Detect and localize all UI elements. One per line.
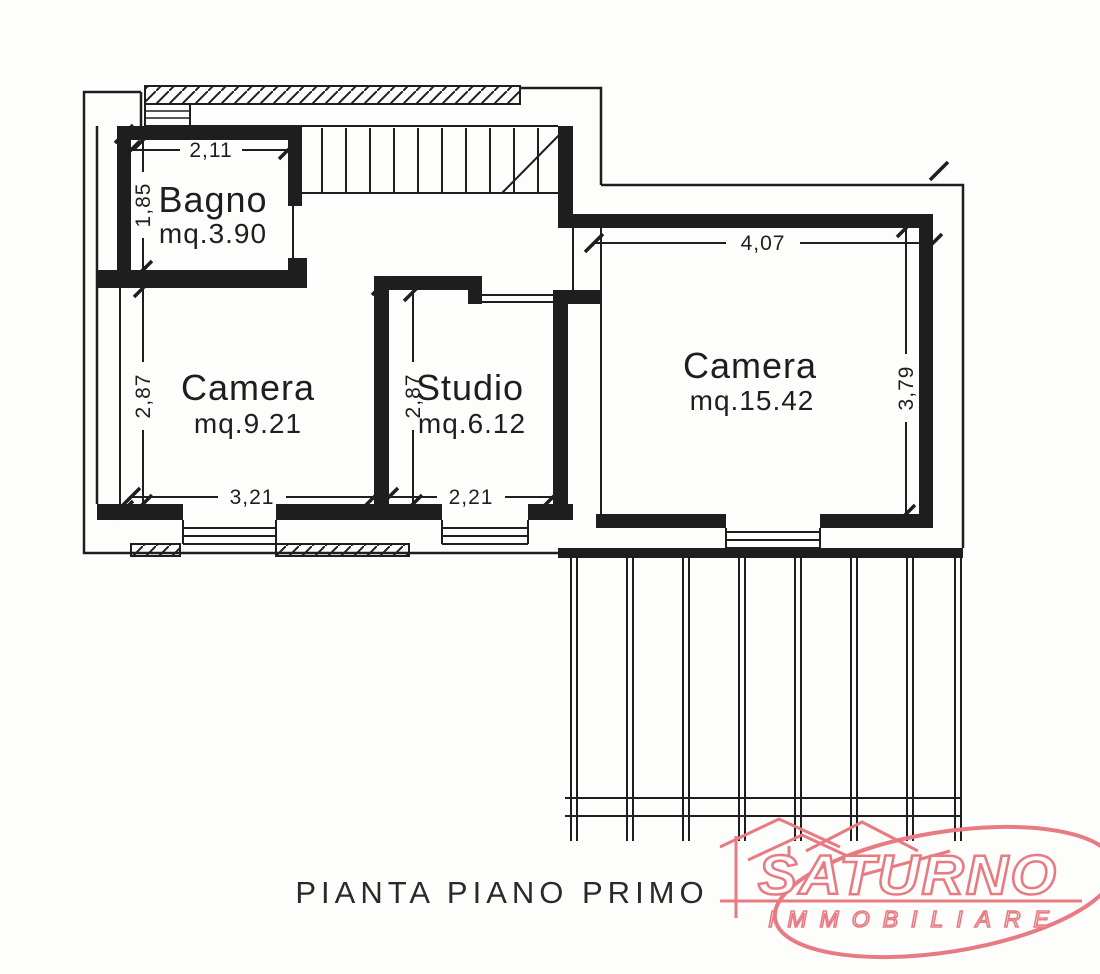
camera2-window bbox=[726, 528, 820, 548]
camera2-bottom-wall-left bbox=[596, 514, 726, 528]
plan-title: PIANTA PIANO PRIMO bbox=[295, 875, 708, 910]
studio-top-notch bbox=[468, 276, 482, 304]
stair-break-line bbox=[502, 128, 566, 193]
right-block-bottom-edge bbox=[558, 548, 963, 558]
camera-studio-wall bbox=[374, 276, 389, 512]
floor-plan-drawing: 2,11 1,85 2,87 3,21 2,87 2,21 4,07 3,79 … bbox=[0, 0, 1100, 974]
camera2-top-wall bbox=[558, 214, 933, 228]
saturno-logo: SATURNO IMMOBILIARE bbox=[720, 806, 1100, 974]
camera1-height-dim: 2,87 bbox=[132, 374, 155, 419]
studio-width-dim: 2,21 bbox=[449, 486, 494, 509]
studio-label: Studio bbox=[416, 367, 524, 408]
camera2-area: mq.15.42 bbox=[690, 385, 815, 416]
detail-lines bbox=[120, 206, 601, 514]
south-wall-seg3 bbox=[528, 504, 573, 520]
studio-window-lines bbox=[482, 295, 553, 302]
camera1-label: Camera bbox=[181, 367, 315, 408]
balcony-hatch-strip bbox=[145, 86, 520, 126]
floor-plan-page: 2,11 1,85 2,87 3,21 2,87 2,21 4,07 3,79 … bbox=[0, 0, 1100, 974]
stair-treads bbox=[298, 128, 538, 193]
corner-tick bbox=[930, 162, 948, 180]
window-section-box bbox=[145, 104, 190, 126]
divider-notch bbox=[288, 258, 307, 272]
camera2-bottom-wall-right bbox=[820, 514, 933, 528]
bagno-area: mq.3.90 bbox=[159, 218, 267, 249]
corridor-east-wall bbox=[558, 126, 573, 222]
camera1-window bbox=[183, 520, 276, 544]
camera2-height-dim: 3,79 bbox=[895, 366, 918, 411]
camera1-area: mq.9.21 bbox=[194, 408, 302, 439]
studio-window bbox=[442, 520, 528, 544]
logo-subtitle-text: IMMOBILIARE bbox=[768, 906, 1062, 932]
pergola-cross-lines bbox=[565, 798, 961, 816]
camera2-label: Camera bbox=[683, 345, 817, 386]
camera2-width-dim: 4,07 bbox=[741, 232, 786, 255]
logo-brand-text: SATURNO bbox=[758, 843, 1058, 906]
camera1-width-dim: 3,21 bbox=[230, 486, 275, 509]
south-wall-seg2 bbox=[276, 504, 442, 520]
bagno-right-wall bbox=[288, 126, 302, 206]
pergola-beams bbox=[565, 558, 961, 841]
bagno-width-dim: 2,11 bbox=[189, 139, 232, 162]
studio-right-wall bbox=[553, 302, 568, 512]
passage-south-wall bbox=[553, 290, 601, 304]
bagno-label: Bagno bbox=[158, 179, 267, 220]
bagno-height-dim: 1,85 bbox=[132, 183, 155, 228]
studio-area: mq.6.12 bbox=[418, 408, 526, 439]
camera2-right-wall bbox=[919, 214, 933, 528]
